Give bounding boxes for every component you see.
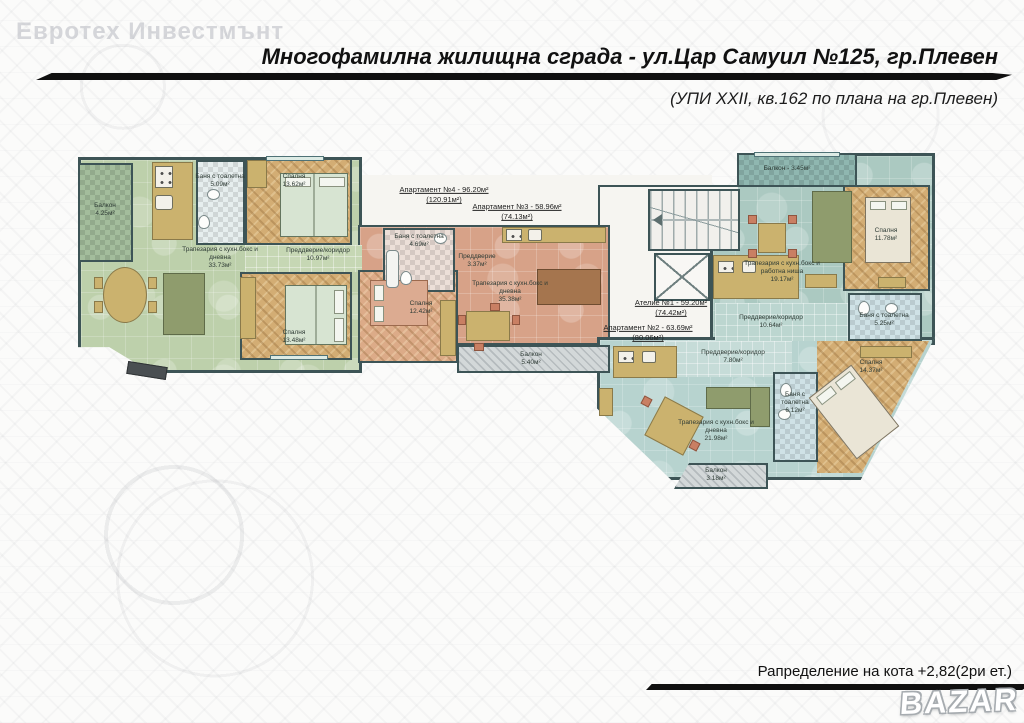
apt3-wardrobe [440,300,456,356]
watermark-bazar-logo: BAZAR [898,682,1019,722]
room-label-apt3-balcony: Балкон5.40м² [520,351,542,367]
room-label-atelier1-living: Трапезария с кухн.бокс и работна ниша19.… [743,260,821,284]
apt4-washbasin [207,189,220,200]
page: Евротех Инвестмънт Многофамилна жилищна … [0,0,1024,723]
apt2-wardrobe-top [860,346,912,358]
apt2-stove-icon [618,351,634,363]
pillow [319,177,345,187]
page-subtitle: (УПИ XXII, кв.162 по плана на гр.Плевен) [670,89,998,109]
chair [490,303,500,311]
apt3-bathtub [386,250,399,288]
pillow [891,201,907,210]
apt2-label: Апартамент №2 - 63.69м² (80.06м²) [603,323,692,343]
window [266,156,324,161]
atelier1-sofa [812,191,852,263]
apt4-wardrobe1 [247,160,267,188]
pillow [816,386,837,406]
elevator-shaft [654,253,710,301]
page-title: Многофамилна жилищна сграда - ул.Цар Сам… [262,44,998,70]
footer-caption: Рапределение на кота +2,82(2ри ет.) [758,663,1012,680]
room-label-apt2-balcony: Балкон3.18м² [705,467,727,483]
watermark-eurotech: Евротех Инвестмънт [16,18,284,46]
room-label-apt3-bedroom: Спалня12.42м² [410,300,433,316]
window [754,152,840,157]
room-label-apt3-living: Трапезария с кухн.бокс и дневна35.38м² [471,280,549,304]
pillow [334,318,344,342]
chair [458,315,466,325]
chair [474,343,484,351]
atelier1-stove-icon [718,261,734,273]
pillow [374,285,384,301]
chair [512,315,520,325]
pillow [334,290,344,314]
room-label-apt2-bedroom: Спалня14.37м² [860,359,883,375]
chair [94,277,103,289]
apt4-dining-table [103,267,147,323]
room-label-apt3-bath: Баня с тоалетна4.69м² [394,233,443,249]
room-label-apt4-balcony: Балкон4.25м² [94,202,116,218]
room-label-apt4-bedroom2: Спалня13.48м² [283,329,306,345]
stair-direction-line [650,191,738,249]
atelier1-dining-table [758,223,786,253]
room-label-apt3-entry: Преддверие3.37м² [458,253,495,269]
stair-arrow-icon [653,214,662,226]
chair [94,301,103,313]
apt3-toilet [400,271,412,285]
apt4-toilet [198,215,210,229]
room-label-apt4-bedroom1: Спалня13.62м² [283,173,306,189]
room-label-apt2-hall: Преддверие/коридор7.80м² [701,349,765,365]
title-divider [36,73,1012,80]
room-label-apt4-living: Трапезария с кухн.бокс и дневна33.73м² [181,246,259,270]
floor-plan: Апартамент №4 - 96.20м² (120.91м²) Апарт… [70,145,940,495]
apt4-wardrobe2 [240,277,256,339]
pillow [374,306,384,322]
apt4-sink-icon [155,195,173,210]
room-label-apt2-living: Трапезария с кухн.бокс и дневна21.98м² [677,419,755,443]
pillow [870,201,886,210]
atelier1-label: Ателие №1 - 59.20м² (74.42м²) [635,298,707,318]
chair [788,215,797,224]
apt4-stove-icon [155,166,173,188]
atelier1-wardrobe [878,277,906,288]
room-label-atelier1-hall: Преддверие/коридор10.64м² [739,314,803,330]
window [270,355,328,360]
pillow [835,371,856,391]
room-label-atelier1-bath: Баня с тоалетна5.25м² [859,312,908,328]
apt2-wardrobe-left [599,388,613,416]
room-label-atelier1-balcony: Балкон - 3.45м² [764,165,811,173]
room-label-apt2-bath: Баня с тоалетна6.12м² [773,391,817,415]
chair [148,277,157,289]
chair [788,249,797,258]
apt3-sink-icon [528,229,542,241]
apt2-sink-icon [642,351,656,363]
chair [748,215,757,224]
apt3-dining-table [466,311,510,341]
room-label-apt4-bath: Баня с тоалетна5.09м² [195,173,244,189]
chair [748,249,757,258]
staircase [648,189,740,251]
room-label-atelier1-bedroom: Спалня11.78м² [875,227,898,243]
apt4-sofa [163,273,205,335]
room-label-apt4-hall: Преддверие/коридор10.97м² [286,247,350,263]
apt3-stove-icon [506,229,522,241]
chair [148,301,157,313]
apt3-label: Апартамент №3 - 58.96м² (74.13м²) [472,202,561,222]
